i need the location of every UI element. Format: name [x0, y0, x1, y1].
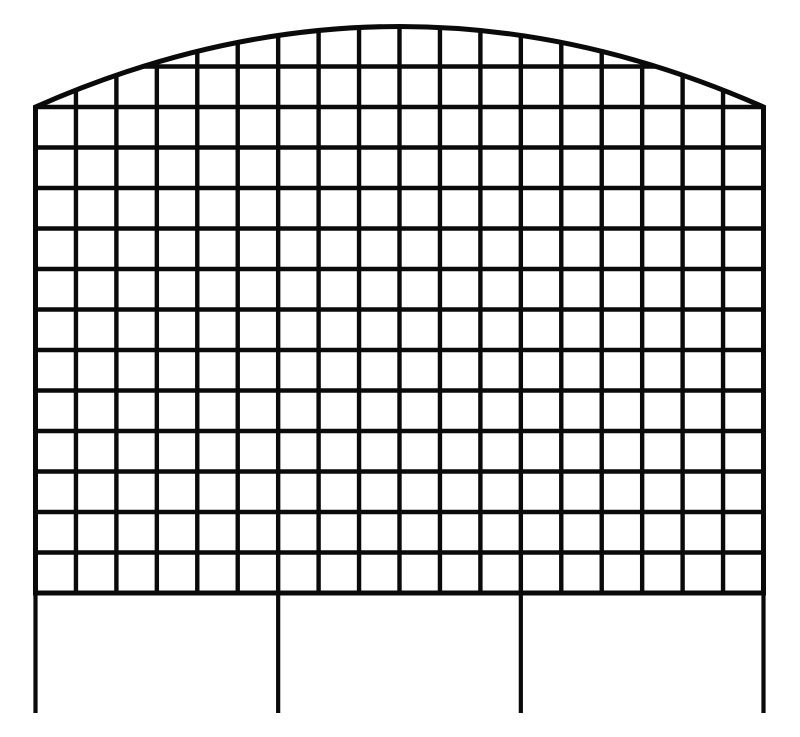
fence-panel-svg	[0, 0, 800, 737]
fence-legs	[36, 593, 764, 713]
fence-grid-wires	[33, 0, 767, 593]
fence-panel-figure	[0, 0, 800, 737]
